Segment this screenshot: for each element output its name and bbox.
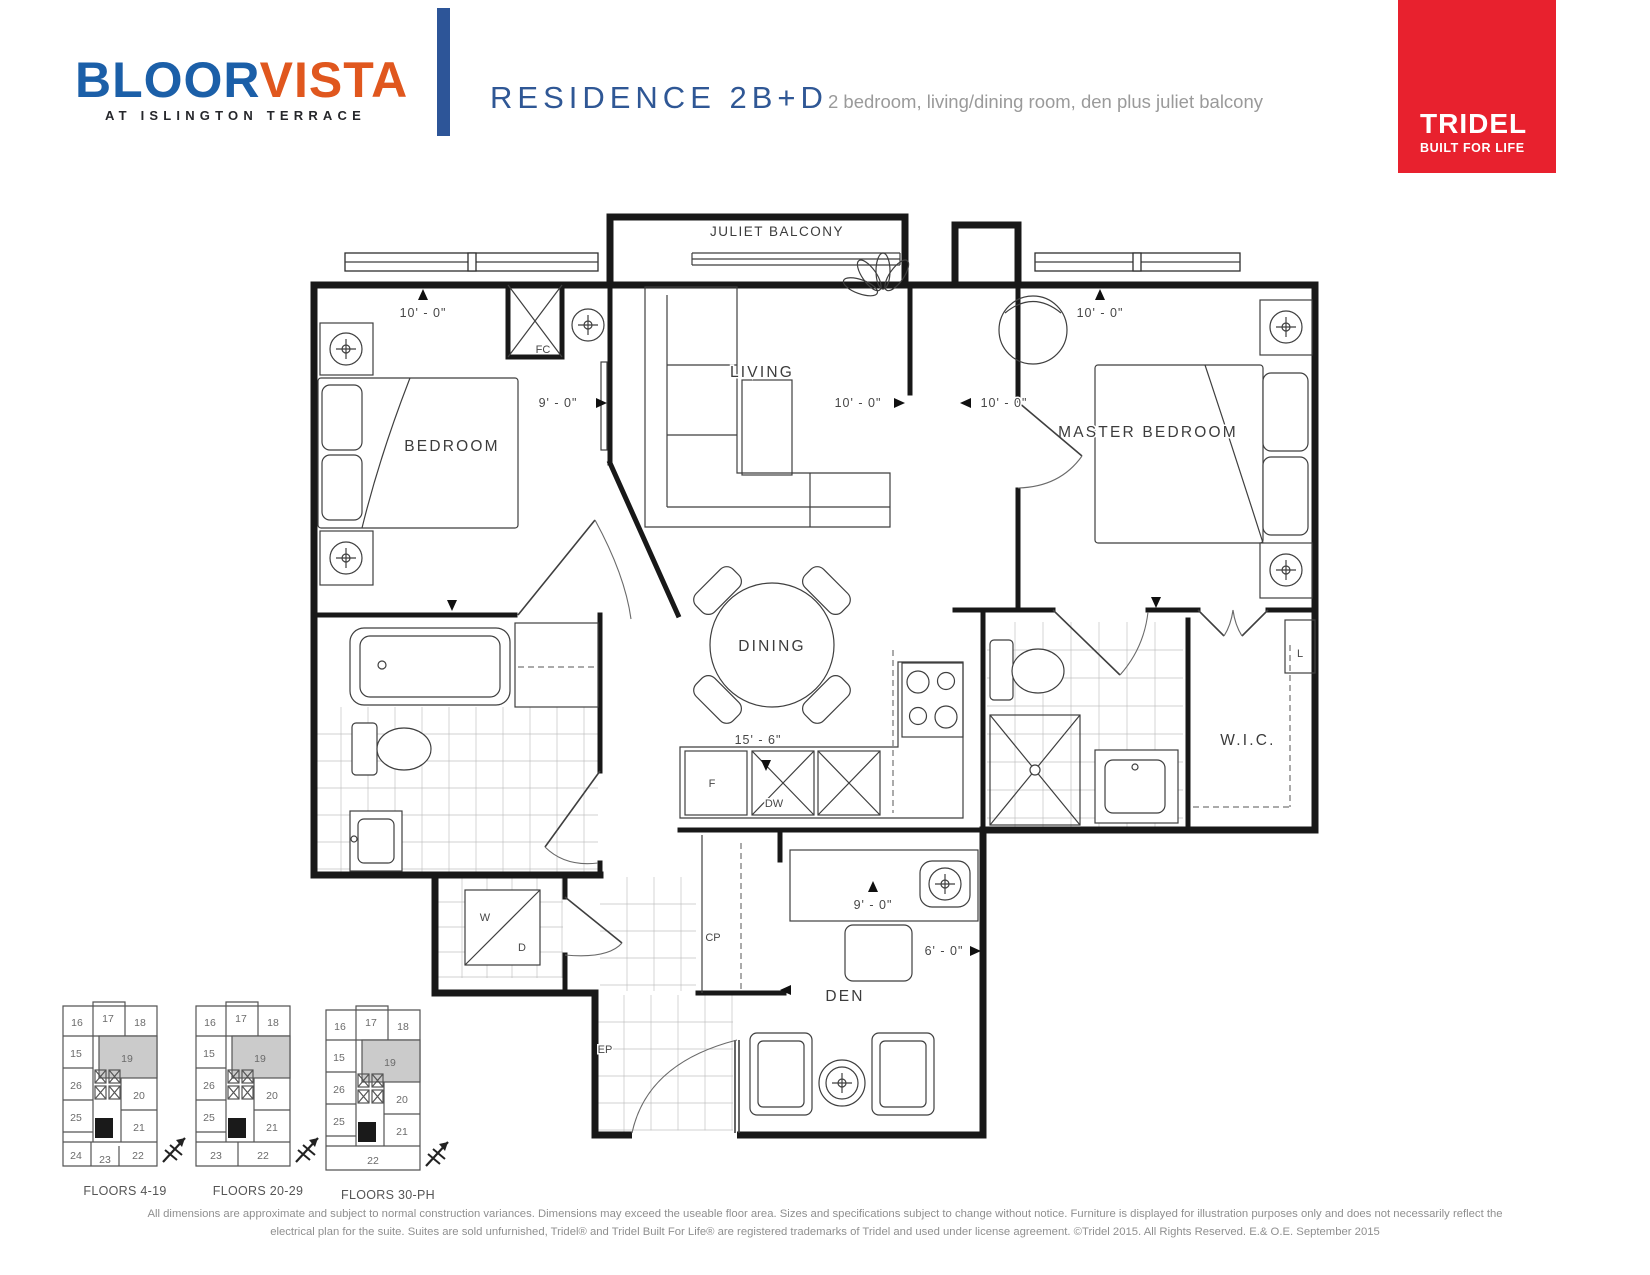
tridel-logo: TRIDEL BUILT FOR LIFE bbox=[1398, 0, 1556, 173]
keyplan-unit: 21 bbox=[396, 1126, 408, 1138]
armchair-icon bbox=[999, 296, 1067, 364]
keyplan-unit: 16 bbox=[334, 1021, 346, 1033]
keyplan-diagram: 1617181519262025212322 bbox=[188, 998, 328, 1178]
keyplan-floors-30-ph: 16171815192620252122 FLOORS 30-PH bbox=[318, 1002, 458, 1202]
logo-wordmark: BLOORVISTA bbox=[75, 55, 435, 105]
keyplan-label: FLOORS 4-19 bbox=[55, 1184, 195, 1198]
keyplan-unit: 20 bbox=[266, 1090, 278, 1102]
linen-label: L bbox=[1297, 648, 1303, 660]
keyplan-unit: 23 bbox=[210, 1150, 222, 1162]
hall-closet bbox=[515, 623, 598, 707]
stair-core bbox=[228, 1118, 246, 1138]
fc-label: FC bbox=[536, 344, 551, 356]
keyplan-floors-20-29: 1617181519262025212322 FLOORS 20-29 bbox=[188, 998, 328, 1198]
juliet-balcony-railing bbox=[692, 253, 900, 265]
toilet-icon bbox=[990, 640, 1013, 700]
juliet-balcony-label: JULIET BALCONY bbox=[710, 224, 844, 239]
keyplan-unit: 15 bbox=[333, 1052, 345, 1064]
keyplan-unit: 24 bbox=[70, 1150, 82, 1162]
disclaimer-line1: All dimensions are approximate and subje… bbox=[0, 1206, 1650, 1224]
logo-word-bloor: BLOOR bbox=[75, 52, 260, 108]
keyplan-unit: 18 bbox=[134, 1017, 146, 1029]
keyplan-floors-4-19: 161718151926202521242322 FLOORS 4-19 bbox=[55, 998, 195, 1198]
keyplan-unit: 16 bbox=[71, 1017, 83, 1029]
bedroom-label: BEDROOM bbox=[404, 438, 500, 455]
keyplan-unit: 22 bbox=[257, 1150, 269, 1162]
desk-chair bbox=[845, 925, 912, 981]
dim-bedroom-right: 9' - 0" bbox=[539, 396, 578, 410]
ensuite-bathroom bbox=[990, 610, 1178, 825]
keyplan-unit: 15 bbox=[70, 1048, 82, 1060]
keyplan-unit: 19 bbox=[254, 1053, 266, 1065]
living-furniture bbox=[645, 253, 913, 527]
dim-den: 6' - 0" bbox=[925, 944, 964, 958]
ceiling-fixture-icon bbox=[572, 309, 604, 341]
dim-master-top: 10' - 0" bbox=[1077, 306, 1124, 320]
keyplan-unit: 22 bbox=[367, 1155, 379, 1167]
ep-label: EP bbox=[598, 1044, 613, 1056]
page-title: RESIDENCE 2B+D bbox=[490, 80, 828, 116]
keyplan-unit: 15 bbox=[203, 1048, 215, 1060]
keyplan-unit: 17 bbox=[102, 1013, 114, 1025]
fan-coil-shaft: FC bbox=[508, 285, 562, 357]
keyplan-unit: 20 bbox=[396, 1094, 408, 1106]
fridge-label: F bbox=[709, 778, 716, 790]
keyplan-unit: 26 bbox=[203, 1080, 215, 1092]
washer-label: W bbox=[480, 912, 491, 924]
tridel-logo-tagline: BUILT FOR LIFE bbox=[1420, 141, 1556, 155]
dryer-label: D bbox=[518, 942, 526, 954]
keyplan-unit: 21 bbox=[133, 1122, 145, 1134]
keyplan-unit: 26 bbox=[333, 1084, 345, 1096]
keyplan-unit: 16 bbox=[204, 1017, 216, 1029]
dw-label: DW bbox=[765, 798, 784, 810]
disclaimer: All dimensions are approximate and subje… bbox=[0, 1206, 1650, 1241]
keyplan-unit: 19 bbox=[121, 1053, 133, 1065]
master-window bbox=[1035, 253, 1240, 271]
keyplan-diagram: 161718151926202521242322 bbox=[55, 998, 195, 1178]
hall-tiles bbox=[600, 877, 696, 991]
walk-in-closet: L bbox=[1193, 610, 1315, 807]
keyplan-unit: 22 bbox=[132, 1150, 144, 1162]
armchair bbox=[750, 1033, 812, 1115]
angled-hall-wall bbox=[610, 463, 678, 615]
keyplan-unit: 25 bbox=[203, 1112, 215, 1124]
cp-label: CP bbox=[705, 932, 720, 944]
den-furniture: CP bbox=[702, 835, 978, 1115]
header-divider-bar bbox=[437, 8, 450, 136]
suite-entry-door bbox=[632, 1040, 739, 1133]
disclaimer-line2: electrical plan for the suite. Suites ar… bbox=[0, 1224, 1650, 1242]
entry-tiles bbox=[597, 995, 733, 1133]
keyplan-unit: 17 bbox=[235, 1013, 247, 1025]
living-label: LIVING bbox=[730, 364, 794, 381]
dim-bedroom-top: 10' - 0" bbox=[400, 306, 447, 320]
stair-core bbox=[358, 1122, 376, 1142]
keyplan-unit: 21 bbox=[266, 1122, 278, 1134]
logo-word-vista: VISTA bbox=[260, 52, 409, 108]
bloorvista-logo: BLOORVISTA AT ISLINGTON TERRACE bbox=[75, 55, 435, 123]
keyplan-unit: 19 bbox=[384, 1057, 396, 1069]
master-bedroom-label: MASTER BEDROOM bbox=[1058, 424, 1238, 441]
dim-master-left: 10' - 0" bbox=[981, 396, 1028, 410]
keyplan-unit: 25 bbox=[333, 1116, 345, 1128]
keyplan-unit: 23 bbox=[99, 1154, 111, 1166]
armchair bbox=[872, 1033, 934, 1115]
keyplan-unit: 18 bbox=[397, 1021, 409, 1033]
main-bathroom bbox=[350, 623, 600, 871]
keyplan-unit: 25 bbox=[70, 1112, 82, 1124]
dim-kitchen: 15' - 6" bbox=[735, 733, 782, 747]
brochure-page: BLOORVISTA AT ISLINGTON TERRACE RESIDENC… bbox=[0, 0, 1650, 1275]
bedroom-window bbox=[345, 253, 598, 271]
keyplan-label: FLOORS 30-PH bbox=[318, 1188, 458, 1202]
wic-label: W.I.C. bbox=[1220, 732, 1275, 749]
keyplan-unit: 20 bbox=[133, 1090, 145, 1102]
toilet-icon bbox=[352, 723, 377, 775]
master-furniture bbox=[999, 296, 1312, 598]
keyplan-unit: 18 bbox=[267, 1017, 279, 1029]
dim-den-desk: 9' - 0" bbox=[854, 898, 893, 912]
keyplan-unit: 26 bbox=[70, 1080, 82, 1092]
dining-label: DINING bbox=[738, 638, 805, 655]
stair-core bbox=[95, 1118, 113, 1138]
master-door bbox=[1018, 402, 1082, 488]
logo-tagline: AT ISLINGTON TERRACE bbox=[105, 108, 435, 123]
laundry-closet: W D bbox=[465, 890, 622, 965]
fridge bbox=[685, 751, 747, 815]
keyplan-label: FLOORS 20-29 bbox=[188, 1184, 328, 1198]
den-label: DEN bbox=[825, 988, 864, 1005]
dim-living: 10' - 0" bbox=[835, 396, 882, 410]
keyplan-unit: 17 bbox=[365, 1017, 377, 1029]
tridel-logo-name: TRIDEL bbox=[1420, 110, 1556, 138]
page-subtitle: 2 bedroom, living/dining room, den plus … bbox=[828, 91, 1263, 113]
keyplan-diagram: 16171815192620252122 bbox=[318, 1002, 458, 1182]
bedroom-door bbox=[518, 520, 631, 619]
wall-bump bbox=[955, 225, 1018, 285]
